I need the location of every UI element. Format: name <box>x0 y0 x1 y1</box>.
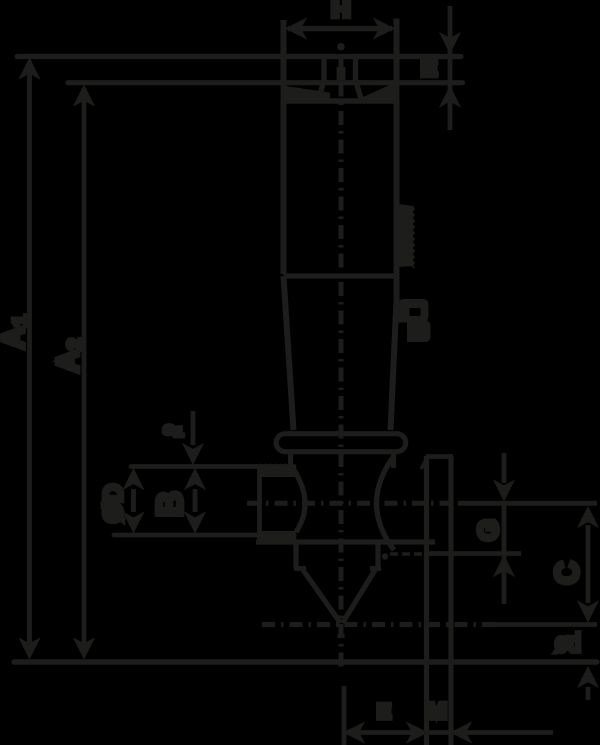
svg-text:ØD: ØD <box>98 484 128 523</box>
svg-text:G: G <box>473 519 504 541</box>
svg-text:E: E <box>377 701 391 724</box>
svg-text:H: H <box>332 0 351 22</box>
svg-text:ød: ød <box>555 629 581 659</box>
svg-text:B: B <box>149 491 190 517</box>
svg-text:M: M <box>427 699 447 724</box>
svg-text:E: E <box>421 56 437 81</box>
svg-text:C: C <box>549 561 585 584</box>
